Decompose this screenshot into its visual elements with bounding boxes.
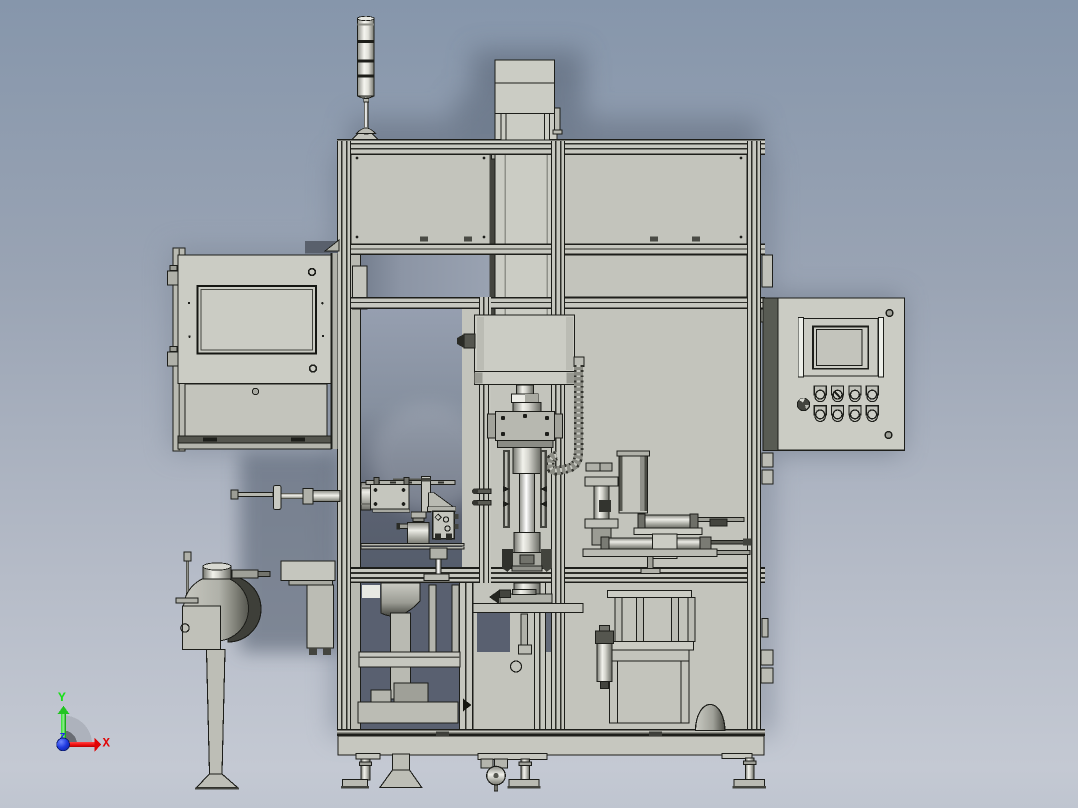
- svg-text:X: X: [103, 737, 111, 751]
- svg-text:Y: Y: [58, 690, 66, 705]
